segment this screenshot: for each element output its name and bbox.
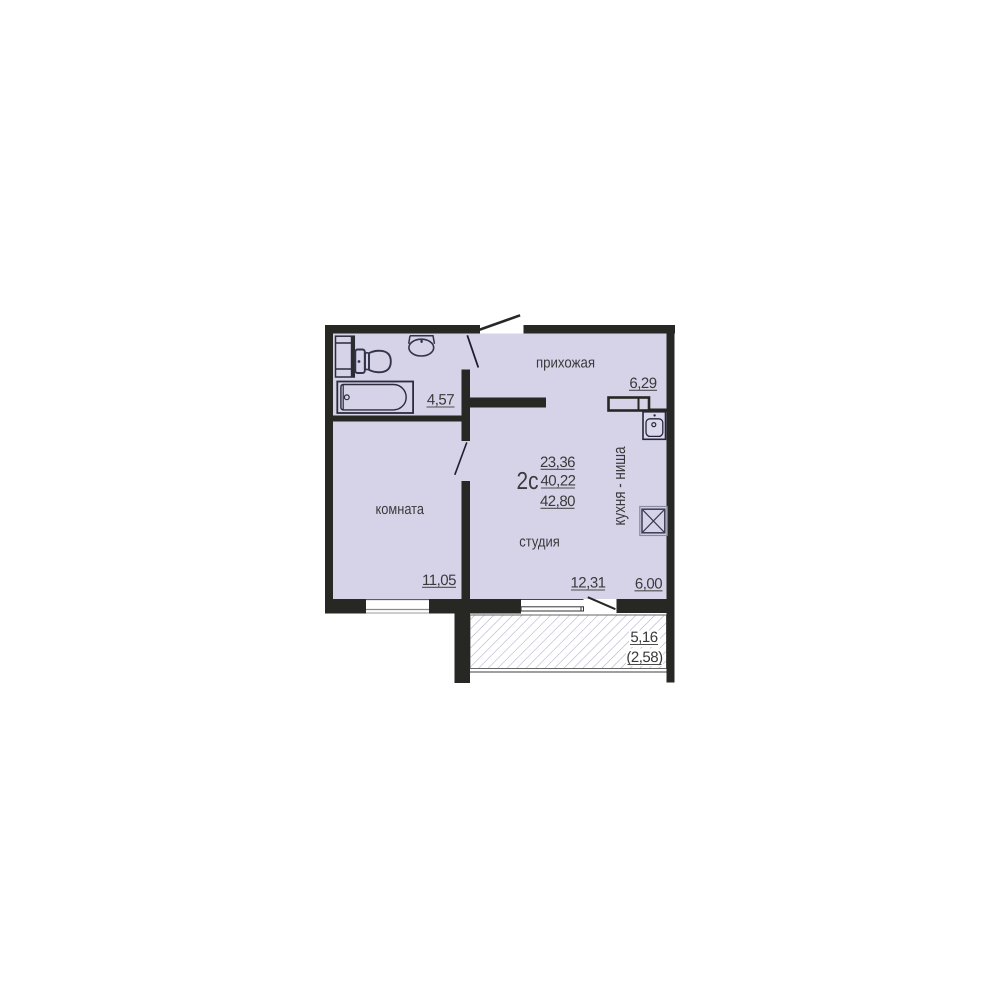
svg-text:4,57: 4,57 bbox=[427, 392, 454, 409]
svg-text:кухня - ниша: кухня - ниша bbox=[610, 446, 629, 525]
svg-text:прихожая: прихожая bbox=[536, 355, 595, 372]
svg-text:42,80: 42,80 bbox=[540, 493, 575, 510]
svg-text:комната: комната bbox=[376, 501, 425, 518]
svg-text:2с: 2с bbox=[517, 468, 539, 495]
svg-text:6,00: 6,00 bbox=[635, 575, 662, 592]
svg-text:40,22: 40,22 bbox=[540, 473, 575, 490]
svg-text:12,31: 12,31 bbox=[570, 575, 605, 592]
svg-text:5,16: 5,16 bbox=[630, 629, 657, 646]
svg-text:студия: студия bbox=[519, 534, 560, 551]
svg-text:11,05: 11,05 bbox=[422, 572, 456, 589]
svg-text:(2,58): (2,58) bbox=[626, 649, 663, 666]
svg-text:23,36: 23,36 bbox=[540, 454, 575, 471]
svg-text:6,29: 6,29 bbox=[629, 375, 656, 392]
